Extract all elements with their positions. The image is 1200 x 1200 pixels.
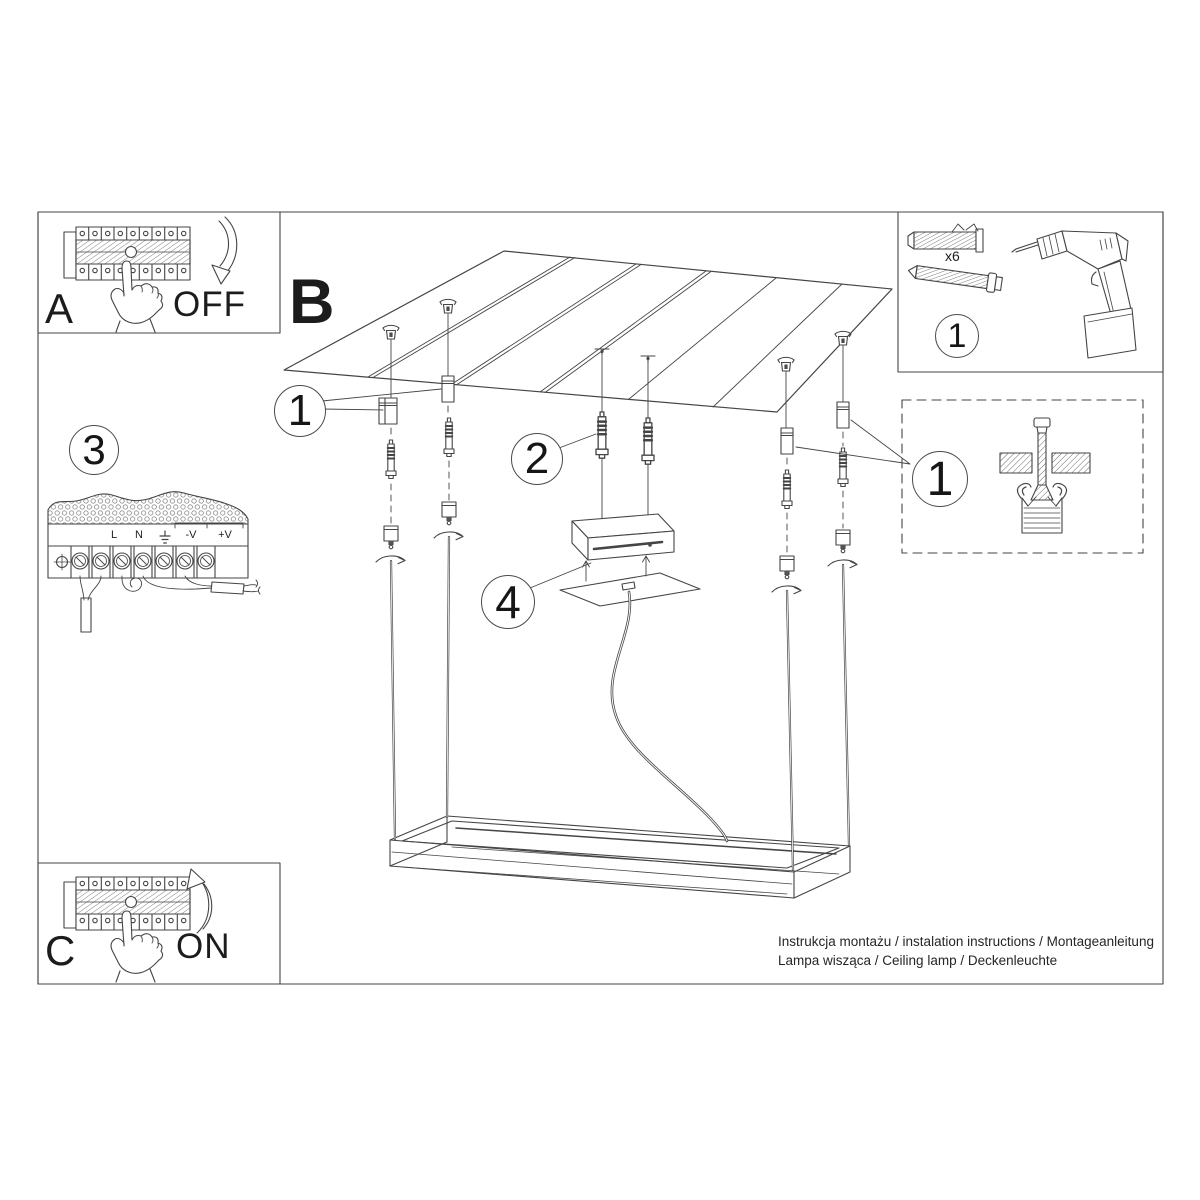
panel-b-letter: B [289,272,335,332]
driver-box [572,514,674,560]
panel-c-letter: C [45,930,75,972]
marker-step3: 3 [69,425,119,475]
breaker-panel-off [64,227,190,332]
arrow-up-icon [187,869,212,933]
ceiling-plane [284,251,892,412]
arrow-down-icon [212,217,237,284]
power-cable [612,592,727,841]
anchor-cross-section [1000,418,1090,533]
led-driver-wiring [48,492,260,632]
driver-screw-columns [596,356,654,521]
marker-step1-tools: 1 [935,314,979,358]
footer-product-line: Lampa wisząca / Ceiling lamp / Deckenleu… [778,952,1057,969]
anchor-quantity-label: x6 [945,249,960,263]
drill-icon [1012,231,1136,358]
hanger-column-3 [772,371,801,594]
terminal-label-pos: +V [215,529,235,541]
footer-title-line: Instrukcja montażu / instalation instruc… [778,933,1154,950]
ceiling-mount-icon [383,299,851,371]
leader-lines [322,389,910,588]
terminal-label-n: N [131,529,147,541]
panel-a-off-label: OFF [173,287,246,323]
marker-step4: 4 [481,575,535,629]
panel-c-on-label: ON [176,929,231,965]
marker-step1-left: 1 [274,385,326,437]
marker-step1-detail: 1 [912,451,968,507]
marker-step2: 2 [511,433,563,485]
breaker-panel-on [64,877,190,982]
terminal-label-l: L [106,529,122,541]
hanger-column-4 [828,346,857,568]
line-art [0,0,1200,1200]
mounting-screw-icon [907,262,1003,294]
pendant-frame [390,816,850,898]
terminal-label-neg: -V [181,529,201,541]
panel-a-letter: A [45,288,73,330]
instruction-sheet: A OFF B C ON x6 1 1 1 2 3 4 L N -V +V In… [0,0,1200,1200]
hanger-column-2 [434,314,463,540]
